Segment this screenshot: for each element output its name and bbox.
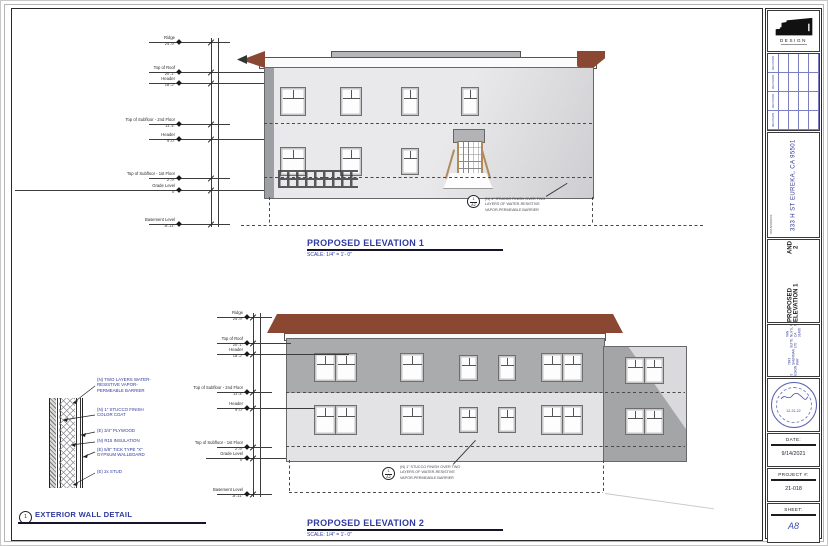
project-value: 21-018 — [768, 483, 819, 492]
revision-cell — [809, 54, 819, 73]
revision-cell — [809, 111, 819, 130]
revision-table: REVISIONREVISIONREVISIONREVISION — [767, 53, 820, 131]
note-line: (N) R15 INSULATION — [97, 438, 140, 443]
elevation2-title: PROPOSED ELEVATION 2 — [307, 518, 424, 528]
revision-cell — [799, 73, 809, 92]
window — [498, 407, 516, 433]
divider — [771, 479, 816, 481]
firm-info-line: PHONE: 818.592.3201 — [790, 324, 798, 326]
basement-outline — [603, 460, 604, 492]
sheet-number: A8 — [768, 518, 819, 531]
revision-cell: REVISION — [768, 92, 779, 111]
revision-cell — [789, 111, 799, 130]
stamp-signature-icon — [779, 391, 809, 403]
window — [400, 405, 424, 435]
wall-detail-note: (E) 3/4" PLYWOOD — [97, 428, 135, 433]
sheet-number-box: SHEET: A8 — [767, 503, 820, 543]
logo-tagline-rule — [781, 44, 807, 45]
basement-line — [289, 492, 603, 493]
revision-row-label: REVISION — [768, 111, 778, 129]
detail-number: 1 — [24, 514, 27, 520]
drawing-sheet: 1 A2 (N) 1" STUCCO FINISH OVER TWO LAYER… — [0, 0, 828, 546]
wall-detail-note: (N) 1" STUCCO FINISHCOLOR COAT — [97, 407, 144, 418]
callout-line: VAPOR-PERMEABLE BARRIER — [400, 476, 460, 481]
job-address-label: JOB ADDRESS: — [769, 214, 773, 234]
job-address-line2: EUREKA, CA 95501 — [791, 139, 797, 200]
revision-cell: REVISION — [768, 111, 779, 130]
note-line: (E) 3/4" PLYWOOD — [97, 428, 135, 433]
logo-box: DESIGN — [767, 10, 820, 52]
note-line: PERMEABLE BARRIER — [97, 388, 151, 393]
elevation2-scale: SCALE: 1/4" = 1'- 0" — [307, 532, 352, 538]
divider — [771, 514, 816, 516]
callout-sheet-number: A2 — [386, 475, 390, 480]
revision-cell — [799, 54, 809, 73]
divider — [771, 444, 816, 446]
revision-cell: REVISION — [768, 54, 779, 73]
wall-detail-note: (N) TWO LAYERS WATER-RESISTIVE VAPOR-PER… — [97, 377, 151, 393]
firm-info-line: SS DESIGN — [790, 366, 798, 377]
firm-logo-icon — [772, 17, 816, 37]
window — [562, 353, 583, 382]
window — [335, 405, 357, 435]
firm-info-line: VAN NUYS, CA 91406 — [786, 327, 802, 337]
project-box: PROJECT #: 21-018 — [767, 468, 820, 502]
revision-cell — [789, 73, 799, 92]
window — [541, 405, 563, 435]
stucco-callout-note: (N) 1" STUCCO FINISH OVER TWO LAYERS OF … — [400, 465, 460, 481]
window — [644, 357, 664, 384]
professional-stamp: 12-31-22 — [771, 382, 817, 428]
revision-cell — [809, 73, 819, 92]
date-value: 9/14/2021 — [768, 448, 819, 457]
ground-slope-line — [605, 493, 714, 509]
subfloor-1st-line — [286, 446, 685, 447]
window — [498, 355, 516, 381]
stamp-date: 12-31-22 — [786, 409, 800, 413]
firm-info-box: DRAWINGS PROVIDED BY:SS DESIGN7843 SHERM… — [767, 324, 820, 377]
note-line: (E) 2x STUD — [97, 469, 122, 474]
sheet-label: SHEET: — [768, 504, 819, 512]
revision-row-label: REVISION — [768, 92, 778, 110]
revision-cell — [789, 92, 799, 111]
wall-detail-note: (E) 2x STUD — [97, 469, 122, 474]
revision-row-label: REVISION — [768, 54, 778, 72]
window — [400, 353, 424, 382]
wall-detail-note: (N) R15 INSULATION — [97, 438, 140, 443]
revision-row-label: REVISION — [768, 73, 778, 91]
revision-cell — [799, 92, 809, 111]
wall-detail-note: (E) 5/8" TICK TYPE "X"GYPSUM WALLBOARD — [97, 447, 145, 458]
revision-cell — [779, 54, 789, 73]
window — [314, 353, 336, 382]
job-address-box: 333 H ST EUREKA, CA 95501 JOB ADDRESS: — [767, 132, 820, 238]
revision-cell: REVISION — [768, 73, 779, 92]
firm-info-line: SUITE 170 — [790, 338, 798, 347]
sheet-title-box: PROPOSED ELEVATION 1 AND 2 — [767, 239, 820, 323]
callout-detail-number: 1 — [385, 468, 392, 475]
note-line: COLOR COAT — [97, 412, 144, 417]
window — [335, 353, 357, 382]
revision-cell — [799, 111, 809, 130]
stucco-callout-bubble: 1 A2 — [382, 467, 395, 480]
date-box: DATE: 9/14/2021 — [767, 433, 820, 467]
stucco-hatch — [50, 398, 56, 488]
window — [541, 353, 563, 382]
sheet-title-line1: PROPOSED ELEVATION 1 — [788, 258, 800, 322]
stamp-box: 12-31-22 — [767, 378, 820, 432]
window — [625, 408, 645, 435]
date-label: DATE: — [768, 434, 819, 442]
sheet-title-line2: AND 2 — [788, 240, 800, 256]
roof-icon — [267, 314, 623, 333]
title-block: DESIGN REVISIONREVISIONREVISIONREVISION … — [765, 8, 822, 539]
revision-cell — [779, 111, 789, 130]
note-line: GYPSUM WALLBOARD — [97, 452, 145, 457]
revision-cell — [779, 92, 789, 111]
project-label: PROJECT #: — [768, 469, 819, 477]
window — [459, 407, 478, 433]
window — [314, 405, 336, 435]
title-underline — [18, 522, 206, 524]
revision-cell — [789, 54, 799, 73]
extension-line — [267, 354, 349, 355]
extension-line — [267, 408, 315, 409]
window — [644, 408, 664, 435]
logo-text: DESIGN — [780, 38, 807, 43]
window — [625, 357, 645, 384]
subfloor-2nd-line — [286, 392, 685, 393]
revision-cell — [779, 73, 789, 92]
job-address-line1: 333 H ST — [791, 203, 797, 232]
title-underline — [307, 529, 503, 531]
exterior-wall-detail-view: (N) TWO LAYERS WATER-RESISTIVE VAPOR-PER… — [1, 1, 251, 546]
wall-detail-title: EXTERIOR WALL DETAIL — [35, 510, 132, 519]
firm-info-line: 7843 SHERMAN WAY — [788, 349, 800, 365]
window — [459, 355, 478, 381]
dimension-string — [260, 313, 261, 497]
revision-cell — [809, 92, 819, 111]
basement-outline — [289, 460, 290, 492]
window — [562, 405, 583, 435]
